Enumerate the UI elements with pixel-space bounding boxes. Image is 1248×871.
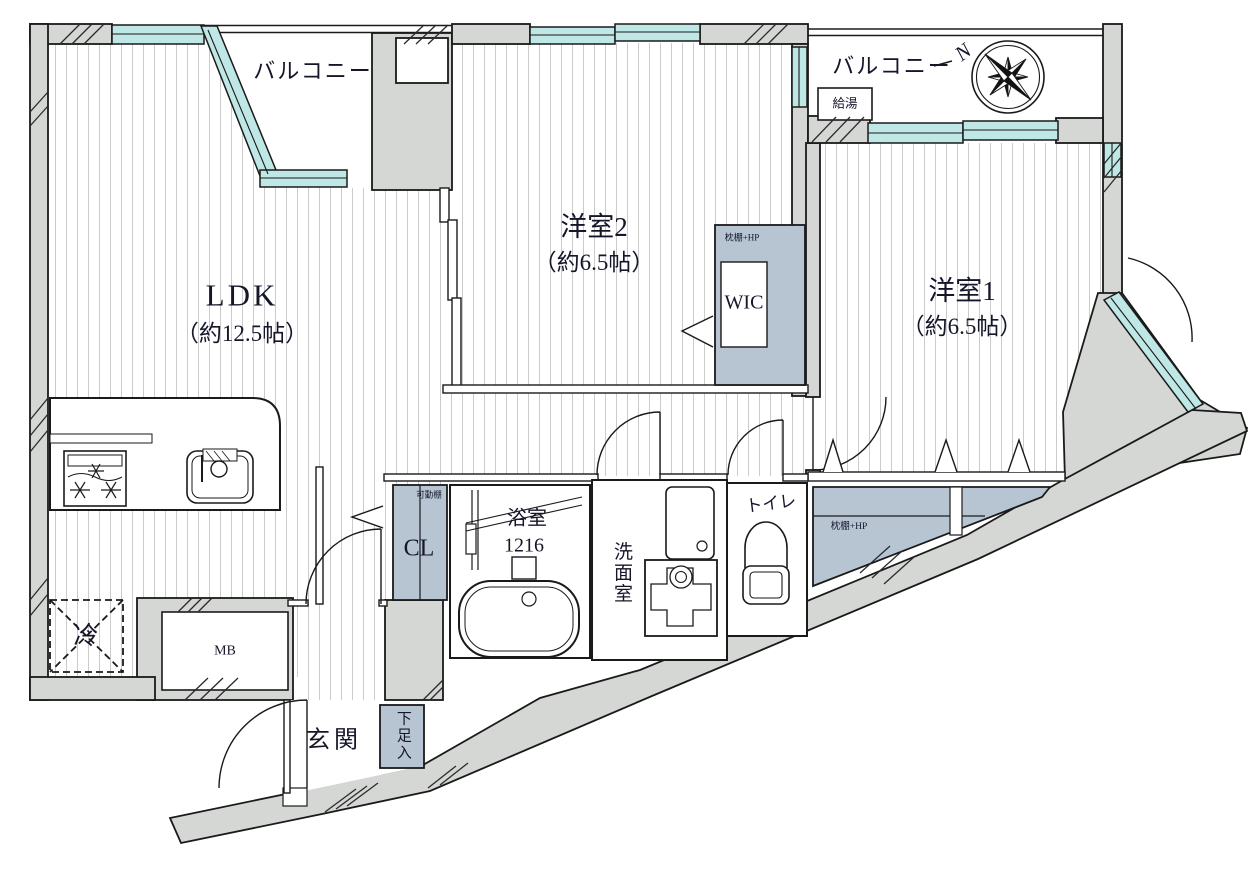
ldk-size-label: （約12.5帖） [176,322,308,346]
kitchen [50,398,280,510]
balcony-right-label: バルコニー [832,54,952,77]
wic-label: WIC [725,293,764,314]
bedroom1-label: 洋室1 [928,277,996,305]
bedroom2-size-label: （約6.5帖） [534,251,655,275]
entrance-label: 玄関 [306,728,362,753]
bathroom-size-label: 1216 [504,536,544,557]
cl-shelf-label: 可動棚 [416,491,442,500]
bath-mixer [512,557,536,579]
bathroom-label: 浴室 [507,509,547,530]
balcony-left-label: バルコニー [253,59,373,82]
ldk-label: LDK [206,280,279,313]
bedroom1-size-label: （約6.5帖） [902,315,1023,339]
floor-plan-drawing [0,0,1248,871]
shoe-cabinet-label: 下足入 [394,711,410,762]
faucet-icon [211,461,227,477]
washroom-label: 洗面室 [611,542,631,605]
refrigerator-label: 冷 [73,624,98,650]
bedroom2-label: 洋室2 [560,213,628,241]
meter-box-label: MB [214,645,236,660]
wic-shelf-label: 枕棚+HP [725,233,760,242]
closet-bedroom1-shelf-label: 枕棚+HP [831,523,868,533]
cl-label: CL [404,536,435,561]
water-heater-label: 給湯 [832,97,857,110]
floor-plan: LDK （約12.5帖） 洋室2 （約6.5帖） 洋室1 （約6.5帖） バルコ… [0,0,1248,871]
toilet-fixture [743,522,789,604]
